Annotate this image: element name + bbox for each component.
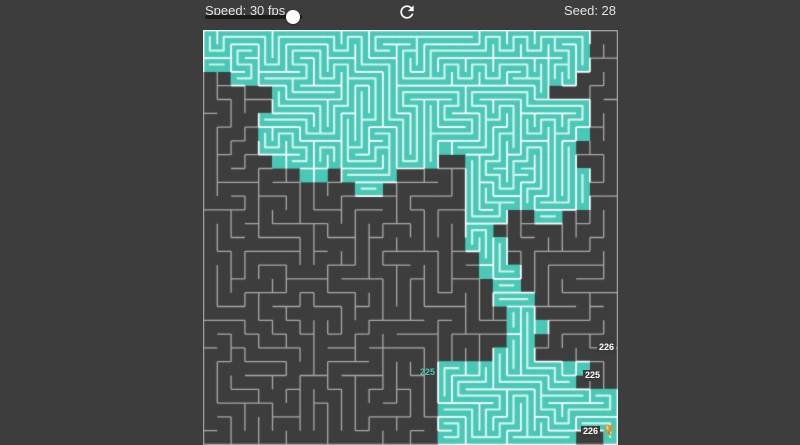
- trophy-icon: [603, 424, 615, 436]
- counter-badge: 225: [583, 370, 602, 381]
- speed-slider-thumb[interactable]: [286, 10, 300, 24]
- app-root: { "page": { "background": "#3D3D3D" }, "…: [0, 0, 800, 438]
- counter-badge: 226: [597, 342, 616, 353]
- counter-badge: 225: [418, 367, 437, 378]
- refresh-icon: [397, 2, 417, 22]
- seed-label: Seed: 28: [564, 3, 616, 18]
- refresh-button[interactable]: [395, 0, 419, 24]
- speed-slider[interactable]: [205, 8, 305, 26]
- maze-canvas: [203, 30, 618, 445]
- counter-badge: 226: [581, 426, 600, 437]
